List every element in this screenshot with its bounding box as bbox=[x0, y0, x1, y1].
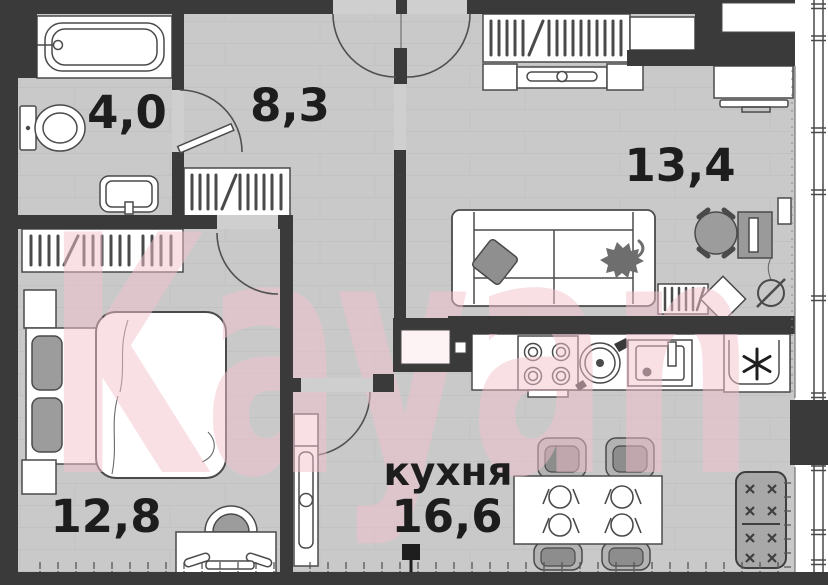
window-hatch bbox=[782, 470, 791, 568]
floor-plan-page: Kayan bbox=[0, 0, 828, 585]
kitchen-name-label: кухня bbox=[383, 450, 512, 495]
bottom-wall bbox=[0, 572, 828, 585]
duct-shaft bbox=[401, 330, 450, 364]
closet-shelf bbox=[630, 17, 695, 50]
tv bbox=[720, 100, 788, 107]
floor-plan-svg: Kayan bbox=[0, 0, 828, 585]
bedroom-area-label: 12,8 bbox=[50, 490, 161, 543]
living-wardrobe bbox=[483, 14, 630, 62]
window-hatch bbox=[298, 562, 786, 572]
shelf bbox=[778, 198, 791, 224]
bathroom-area-label: 4,0 bbox=[87, 86, 167, 139]
window-pier bbox=[790, 400, 828, 465]
hallway-area-label: 8,3 bbox=[250, 79, 330, 132]
living-room-area-label: 13,4 bbox=[624, 139, 735, 192]
kitchen-area-label: 16,6 bbox=[391, 490, 502, 543]
bathtub bbox=[37, 16, 172, 78]
tv-console bbox=[714, 66, 793, 112]
sideboard bbox=[483, 64, 643, 90]
toilet bbox=[20, 105, 85, 151]
exterior-niche bbox=[722, 3, 805, 32]
window-hatch bbox=[34, 562, 278, 572]
